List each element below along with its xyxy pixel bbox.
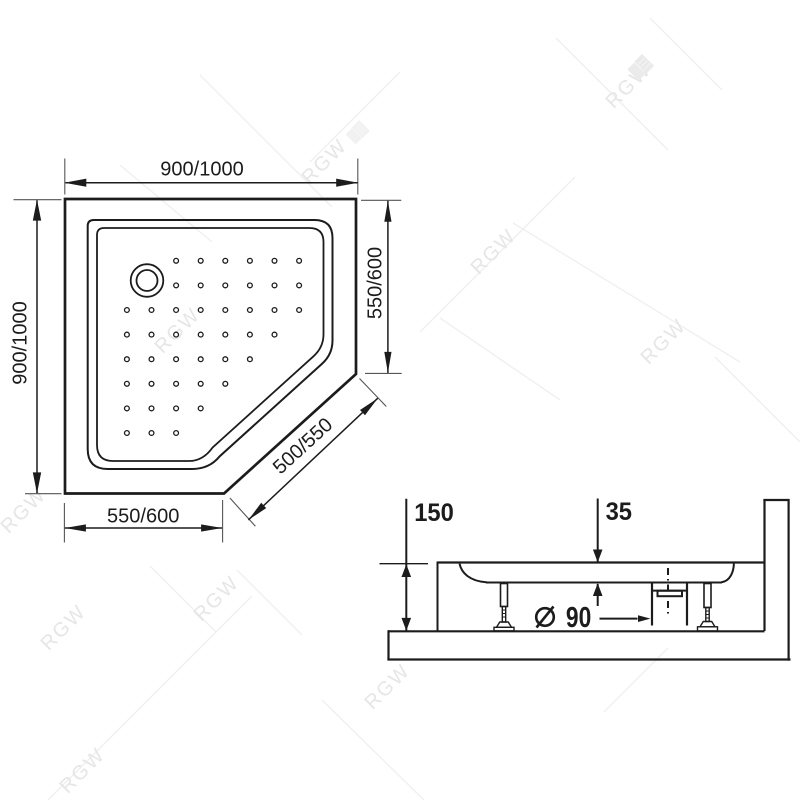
svg-text:35: 35 — [606, 498, 632, 526]
svg-text:900/1000: 900/1000 — [10, 301, 32, 384]
svg-text:90: 90 — [566, 603, 591, 634]
svg-text:150: 150 — [414, 500, 454, 528]
svg-text:900/1000: 900/1000 — [160, 159, 243, 181]
svg-text:550/600: 550/600 — [365, 247, 387, 319]
svg-text:550/600: 550/600 — [107, 506, 179, 528]
